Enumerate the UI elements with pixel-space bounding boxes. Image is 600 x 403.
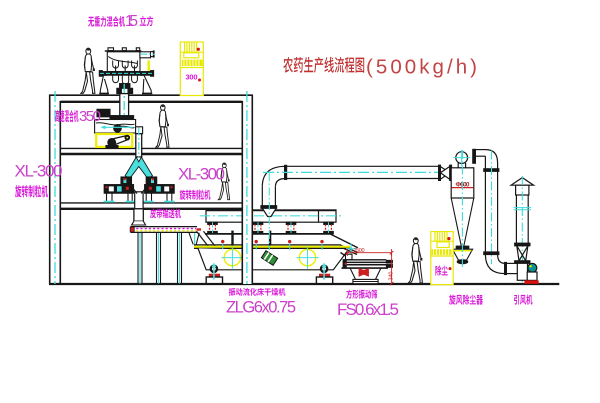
svg-text:350: 350 — [79, 108, 101, 125]
svg-text:XL-300: XL-300 — [15, 162, 63, 181]
svg-text:FS0.6x1.5: FS0.6x1.5 — [337, 300, 399, 319]
svg-text:340: 340 — [389, 272, 395, 281]
svg-text:1.5: 1.5 — [125, 13, 138, 30]
svg-text:XL-300: XL-300 — [178, 165, 225, 184]
svg-text:300: 300 — [186, 73, 198, 82]
svg-text:ZLG6x0.75: ZLG6x0.75 — [226, 299, 296, 317]
svg-text:1500: 1500 — [354, 248, 365, 254]
svg-text:(500kg/h): (500kg/h) — [366, 56, 477, 79]
